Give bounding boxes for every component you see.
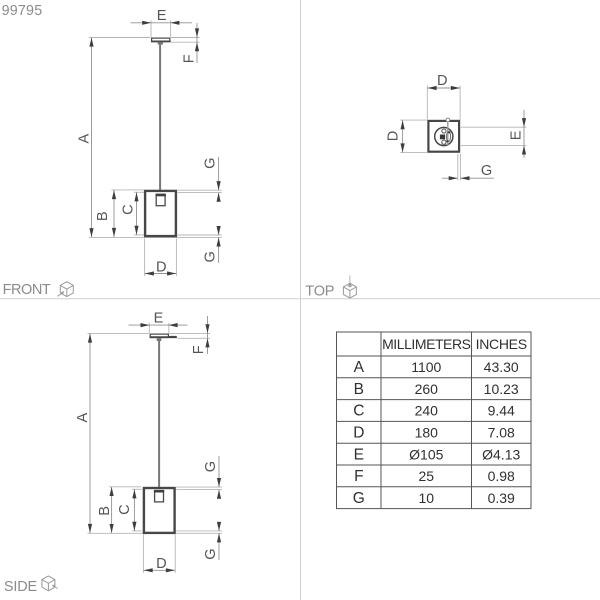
svg-text:C: C (353, 403, 364, 420)
svg-text:G: G (353, 490, 365, 507)
svg-text:10: 10 (419, 490, 435, 506)
svg-text:E: E (509, 130, 525, 140)
svg-text:C: C (117, 504, 133, 515)
svg-text:D: D (386, 131, 402, 142)
svg-text:E: E (157, 8, 167, 24)
svg-text:D: D (156, 259, 167, 275)
svg-text:F: F (191, 345, 207, 354)
svg-text:E: E (154, 310, 164, 326)
svg-text:10.23: 10.23 (484, 381, 519, 397)
svg-text:F: F (354, 468, 363, 485)
svg-text:D: D (353, 425, 364, 442)
svg-text:G: G (203, 461, 219, 472)
svg-text:MILLIMETERS: MILLIMETERS (382, 336, 471, 352)
svg-text:A: A (75, 412, 91, 422)
svg-text:Ø4.13: Ø4.13 (482, 446, 520, 462)
svg-text:SIDE: SIDE (4, 579, 38, 595)
svg-text:A: A (76, 133, 92, 143)
svg-text:G: G (481, 163, 492, 179)
svg-text:G: G (203, 251, 219, 262)
svg-text:240: 240 (415, 403, 439, 419)
svg-text:0.98: 0.98 (488, 468, 515, 484)
svg-text:G: G (203, 548, 219, 559)
svg-text:B: B (354, 381, 364, 398)
svg-text:C: C (121, 204, 137, 215)
svg-text:99795: 99795 (2, 3, 43, 19)
svg-text:260: 260 (415, 381, 439, 397)
svg-text:1100: 1100 (411, 359, 441, 375)
svg-text:E: E (354, 446, 364, 463)
svg-text:0.39: 0.39 (488, 490, 515, 506)
svg-text:43.30: 43.30 (484, 359, 519, 375)
svg-text:G: G (203, 158, 219, 169)
svg-text:D: D (156, 556, 167, 572)
svg-text:180: 180 (415, 425, 439, 441)
svg-text:TOP: TOP (305, 284, 334, 300)
svg-text:9.44: 9.44 (488, 403, 515, 419)
svg-text:FRONT: FRONT (3, 282, 51, 298)
svg-text:A: A (354, 359, 365, 376)
svg-text:D: D (437, 73, 448, 89)
svg-text:Ø105: Ø105 (409, 446, 443, 462)
svg-text:B: B (97, 506, 113, 516)
svg-text:F: F (182, 54, 198, 63)
svg-text:25: 25 (419, 468, 435, 484)
svg-text:INCHES: INCHES (476, 336, 527, 352)
svg-text:B: B (95, 211, 111, 221)
svg-text:7.08: 7.08 (488, 425, 515, 441)
